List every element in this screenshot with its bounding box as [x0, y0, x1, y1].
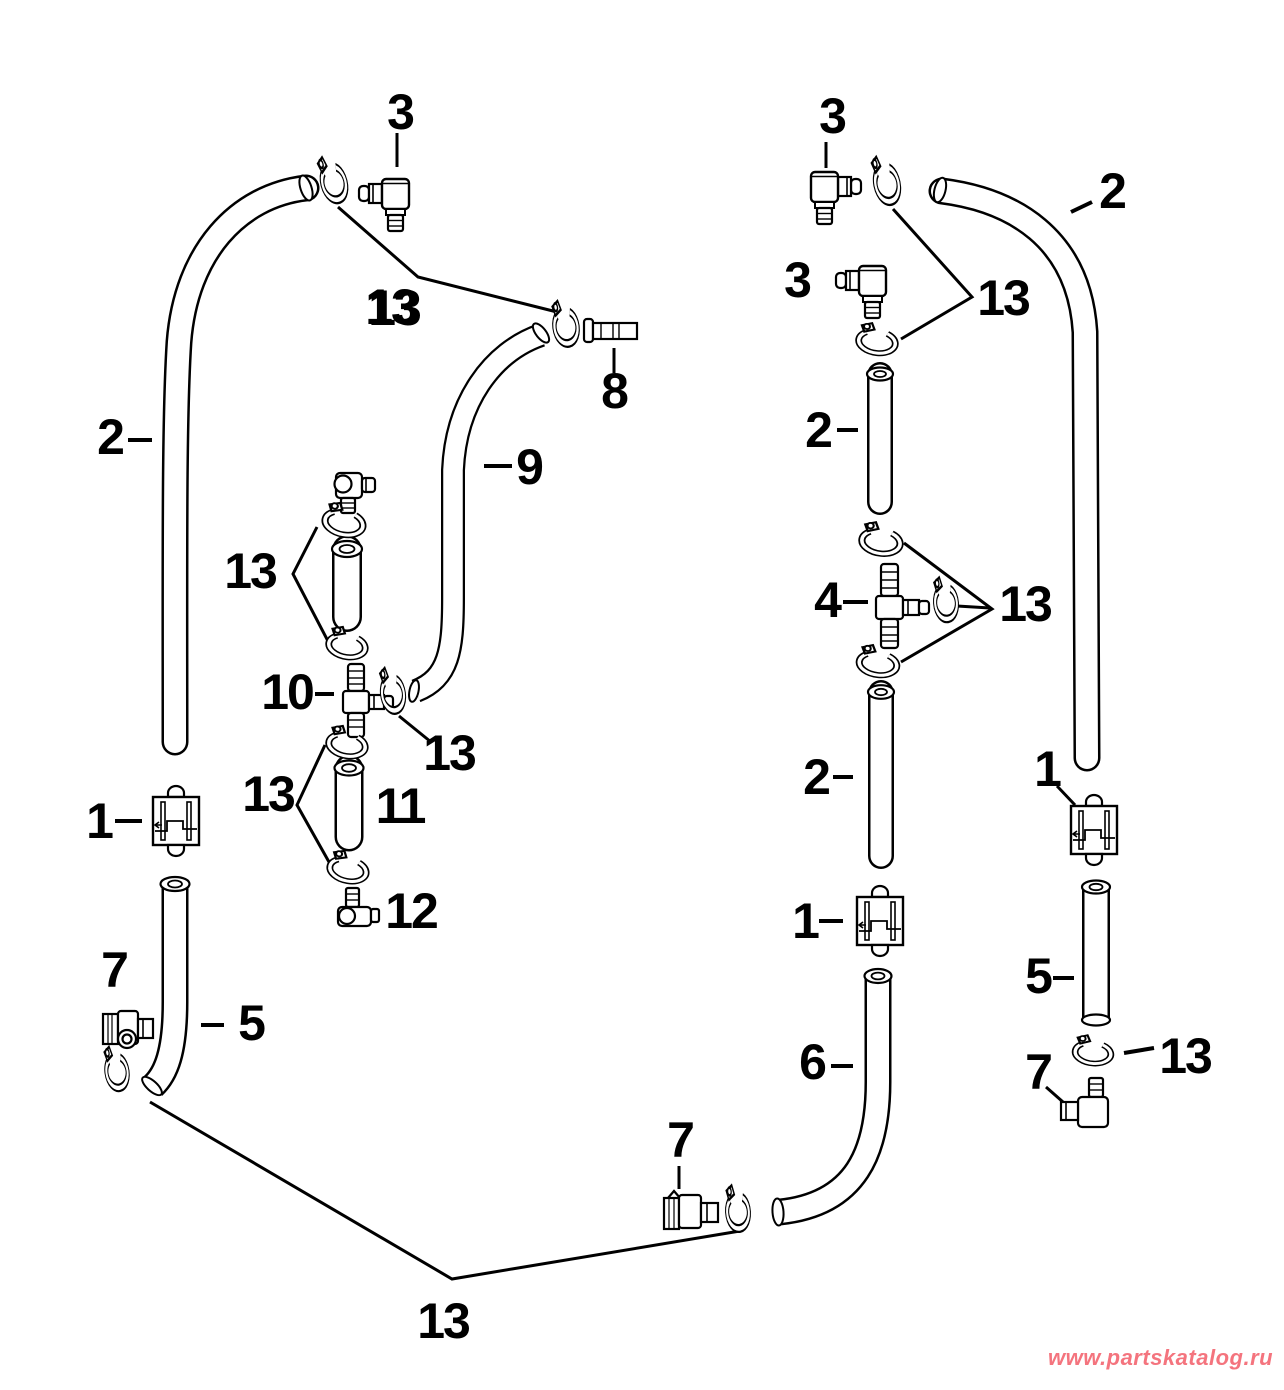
elbow-connector-right-top: [811, 172, 861, 224]
callout-13-center: 13: [423, 728, 475, 778]
hose-2-left: [175, 174, 315, 742]
callout-2-right-lower: 2: [803, 752, 829, 802]
callout-1-far-right: 1: [1034, 744, 1060, 794]
callout-5-right: 5: [1025, 951, 1051, 1001]
tube-11: [335, 761, 364, 838]
callout-2-right-top: 2: [1099, 166, 1125, 216]
callout-3-top-left: 3: [387, 87, 413, 137]
connector-12: [338, 888, 379, 926]
callout-1-left: 1: [86, 796, 112, 846]
callout-8: 8: [601, 366, 627, 416]
clamp: [1074, 1034, 1113, 1065]
callout-13-right-mid: 13: [999, 579, 1051, 629]
hose-9: [407, 321, 552, 703]
clamp: [328, 849, 370, 885]
fitting-8: [584, 319, 637, 342]
callout-2-right-mid: 2: [805, 405, 831, 455]
callout-7-bottom-center: 7: [667, 1115, 693, 1165]
callout-13-far-right: 13: [1159, 1031, 1211, 1081]
clamp: [316, 153, 350, 202]
callout-7-far-right: 7: [1025, 1047, 1051, 1097]
callout-1-right-mid: 1: [792, 896, 818, 946]
tube-2-right-upper: [867, 368, 893, 503]
callout-13-top-center: 13: [365, 282, 417, 332]
elbow-7-bottom-center: [664, 1191, 718, 1229]
clamp: [551, 299, 580, 345]
clamp: [860, 521, 902, 557]
watermark: www.partskatalog.ru: [1048, 1345, 1273, 1371]
callout-13-right-top: 13: [977, 273, 1029, 323]
elbow-7-left: [103, 1011, 153, 1048]
elbow-connector-right-second: [836, 266, 886, 318]
hose-2-right: [932, 177, 1087, 758]
clamp: [857, 322, 897, 356]
parts-diagram-canvas: 3 13 8 2 9 13 10 13 13 1 11 12 7 5 13 7 …: [0, 0, 1284, 1390]
tube-5-right: [1082, 881, 1110, 1026]
hose-clamps: [103, 153, 1113, 1229]
check-valve-mid-right: [857, 886, 903, 956]
clamp: [725, 1184, 750, 1229]
callout-9: 9: [516, 442, 542, 492]
callout-10: 10: [261, 667, 313, 717]
callout-5-left: 5: [238, 998, 264, 1048]
parts-line-art: [0, 0, 1284, 1390]
clamp: [870, 153, 902, 203]
callout-4: 4: [814, 575, 840, 625]
tube-mid-upper: [332, 541, 362, 617]
cross-fitting-4: [876, 564, 929, 648]
check-valve-far-right: [1071, 795, 1117, 865]
callout-11: 11: [376, 781, 425, 831]
tube-2-right-lower: [868, 685, 894, 856]
hose-5-left: [139, 877, 189, 1098]
callout-13-left-lower: 13: [242, 769, 294, 819]
callout-2-left: 2: [97, 412, 123, 462]
hose-6: [772, 969, 892, 1226]
check-valve-left: [153, 786, 199, 856]
callout-6: 6: [799, 1037, 825, 1087]
elbow-connector-top-left: [359, 179, 409, 231]
callout-13-mid-left: 13: [224, 546, 276, 596]
callout-12: 12: [385, 886, 437, 936]
callout-13-bottom: 13: [417, 1296, 469, 1346]
callout-7-left: 7: [101, 945, 127, 995]
callout-3-right-second: 3: [784, 255, 810, 305]
callout-3-right-top: 3: [819, 91, 845, 141]
clamp: [103, 1045, 130, 1090]
elbow-7-far-right: [1061, 1078, 1108, 1127]
